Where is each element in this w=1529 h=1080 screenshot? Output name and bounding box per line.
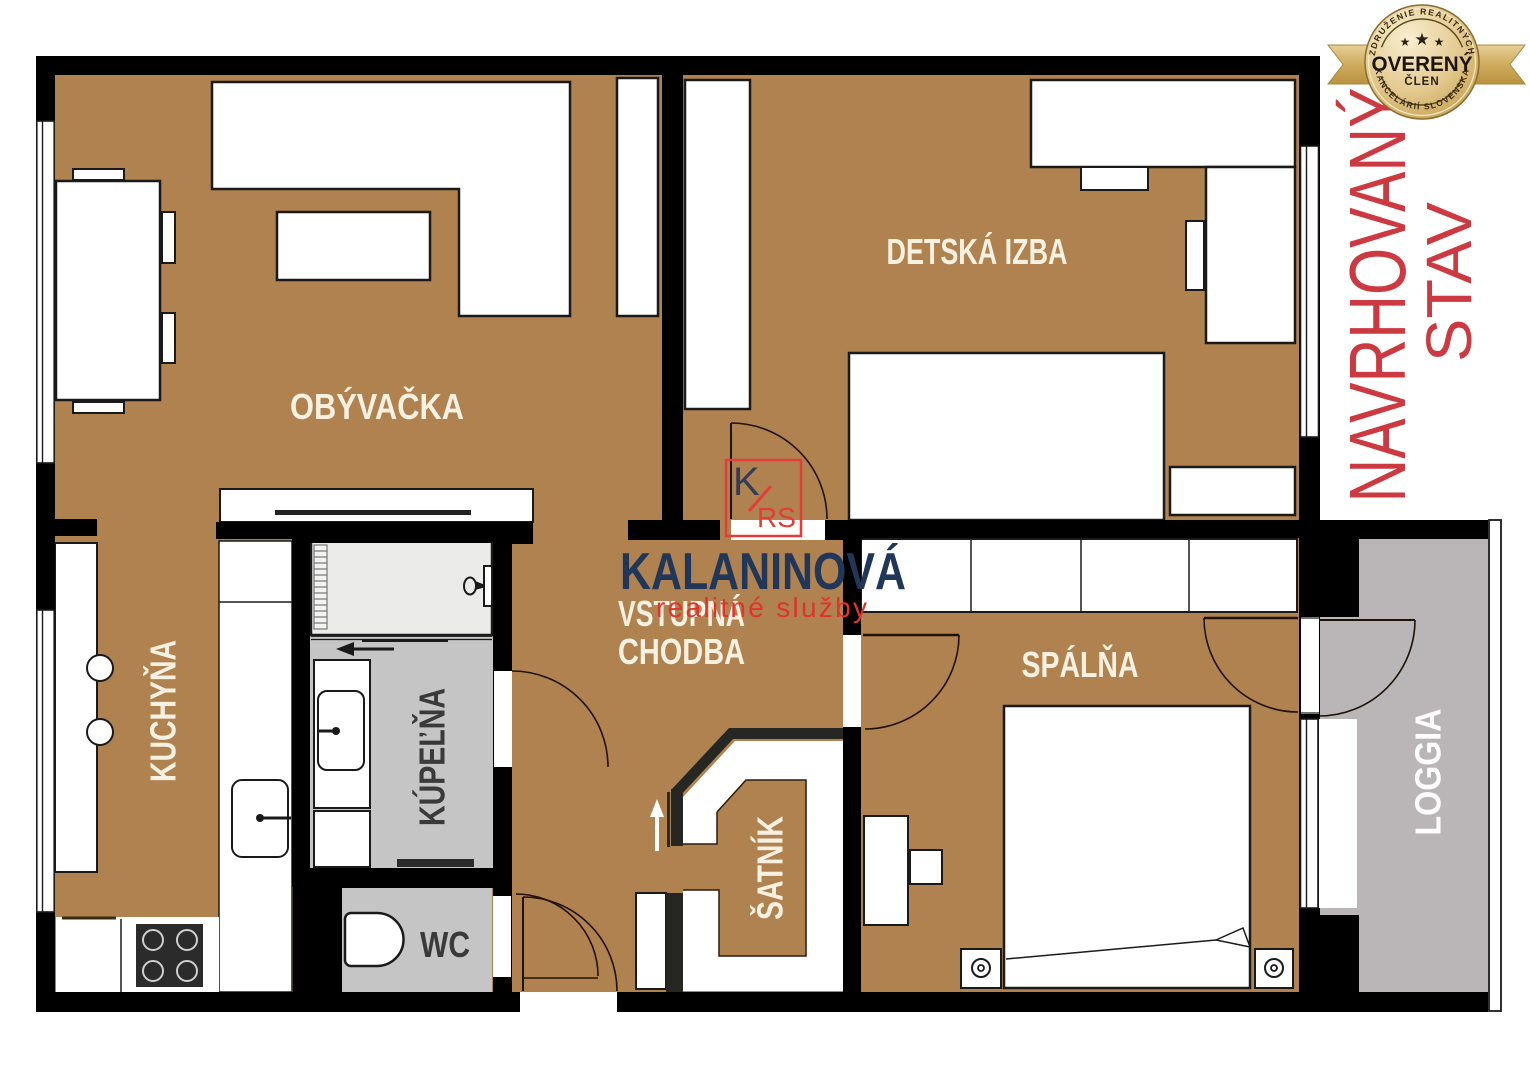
svg-text:SPÁLŇA: SPÁLŇA [1022,643,1139,685]
svg-text:RS: RS [757,502,796,533]
svg-text:NAVRHOVANÝ: NAVRHOVANÝ [1333,88,1422,503]
svg-text:KUCHYŇA: KUCHYŇA [142,640,184,782]
svg-text:★: ★ [1400,35,1411,49]
svg-text:realitné služby: realitné služby [656,592,867,623]
svg-text:★: ★ [1414,30,1429,49]
svg-text:K: K [733,460,760,504]
svg-text:LOGGIA: LOGGIA [1408,709,1449,836]
svg-text:WC: WC [420,924,470,965]
svg-text:CHODBA: CHODBA [618,631,745,672]
svg-text:DETSKÁ IZBA: DETSKÁ IZBA [887,231,1068,272]
svg-text:KÚPEĽŇA: KÚPEĽŇA [411,688,453,826]
svg-text:★: ★ [1434,35,1445,49]
svg-text:ŠATNÍK: ŠATNÍK [749,816,791,920]
svg-text:STAV: STAV [1413,202,1485,362]
svg-text:ČLEN: ČLEN [1404,75,1439,88]
svg-text:OVERENÝ: OVERENÝ [1372,52,1473,76]
svg-text:OBÝVAČKA: OBÝVAČKA [290,385,464,427]
